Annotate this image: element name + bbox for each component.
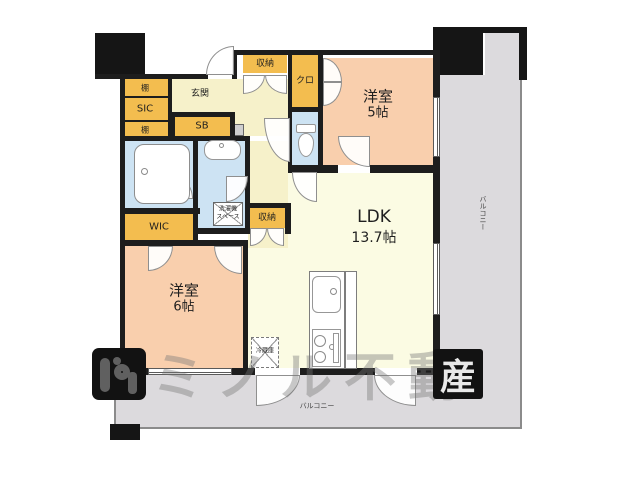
watermark-text: ミノル不動 <box>152 336 472 411</box>
washbasin-faucet <box>219 143 224 148</box>
wall <box>195 228 250 234</box>
watermark-logo-bar <box>100 358 110 392</box>
window <box>433 243 440 315</box>
wall <box>193 141 198 208</box>
kitchen-sink <box>312 276 341 313</box>
label-ldk-size: 13.7帖 <box>351 230 396 246</box>
label-laundry-line1: 洗濯機 <box>219 207 237 214</box>
shelf-divider <box>122 120 168 122</box>
wall <box>245 203 290 208</box>
label-western5-size: 5帖 <box>367 107 388 122</box>
label-ldk-name: LDK <box>357 208 391 228</box>
wall <box>170 112 235 117</box>
floorplan: 棚 SIC 棚 玄関 SB 収納 クロ 洋室 5帖 WIC 洗濯機 スペース 収… <box>0 0 640 480</box>
window <box>433 97 440 157</box>
column-top-left <box>95 33 145 76</box>
wall <box>370 165 440 173</box>
wall <box>95 74 208 79</box>
label-storage-mid: 収納 <box>258 213 276 223</box>
wall <box>120 208 200 214</box>
wall <box>285 203 291 234</box>
watermark-logo-stem <box>128 372 137 394</box>
label-shelf-top: 棚 <box>141 83 149 92</box>
column-top-right <box>433 27 483 75</box>
label-sb: SB <box>195 120 208 132</box>
label-western5-name: 洋室 <box>363 88 393 105</box>
wall <box>433 53 440 97</box>
door-arc-front <box>206 46 234 75</box>
label-closet: クロ <box>296 76 314 86</box>
label-western6-size: 6帖 <box>173 301 194 316</box>
label-wic: WIC <box>149 221 169 233</box>
wall <box>288 107 323 112</box>
balcony-edge <box>114 427 522 429</box>
shelf-divider <box>122 96 168 98</box>
watermark-last-char: 産 <box>433 349 483 399</box>
label-laundry-line2: スペース <box>216 215 239 222</box>
label-storage-top: 収納 <box>256 59 274 69</box>
column-bottom-left <box>110 424 140 440</box>
wall <box>237 50 440 55</box>
kitchen-faucet <box>330 288 337 295</box>
balcony-right-notch <box>519 27 527 80</box>
watermark-logo <box>92 348 146 400</box>
label-western6-name: 洋室 <box>169 282 199 299</box>
label-balcony-right: バルコニー <box>479 196 487 231</box>
label-shelf-bottom: 棚 <box>141 125 149 134</box>
toilet-tank <box>296 124 316 133</box>
balcony-right-top <box>485 33 521 78</box>
balcony-edge <box>520 75 522 428</box>
wall <box>433 157 440 243</box>
bathtub-drain <box>141 168 148 175</box>
label-entrance: 玄関 <box>191 89 209 99</box>
label-sic: SIC <box>137 103 153 115</box>
